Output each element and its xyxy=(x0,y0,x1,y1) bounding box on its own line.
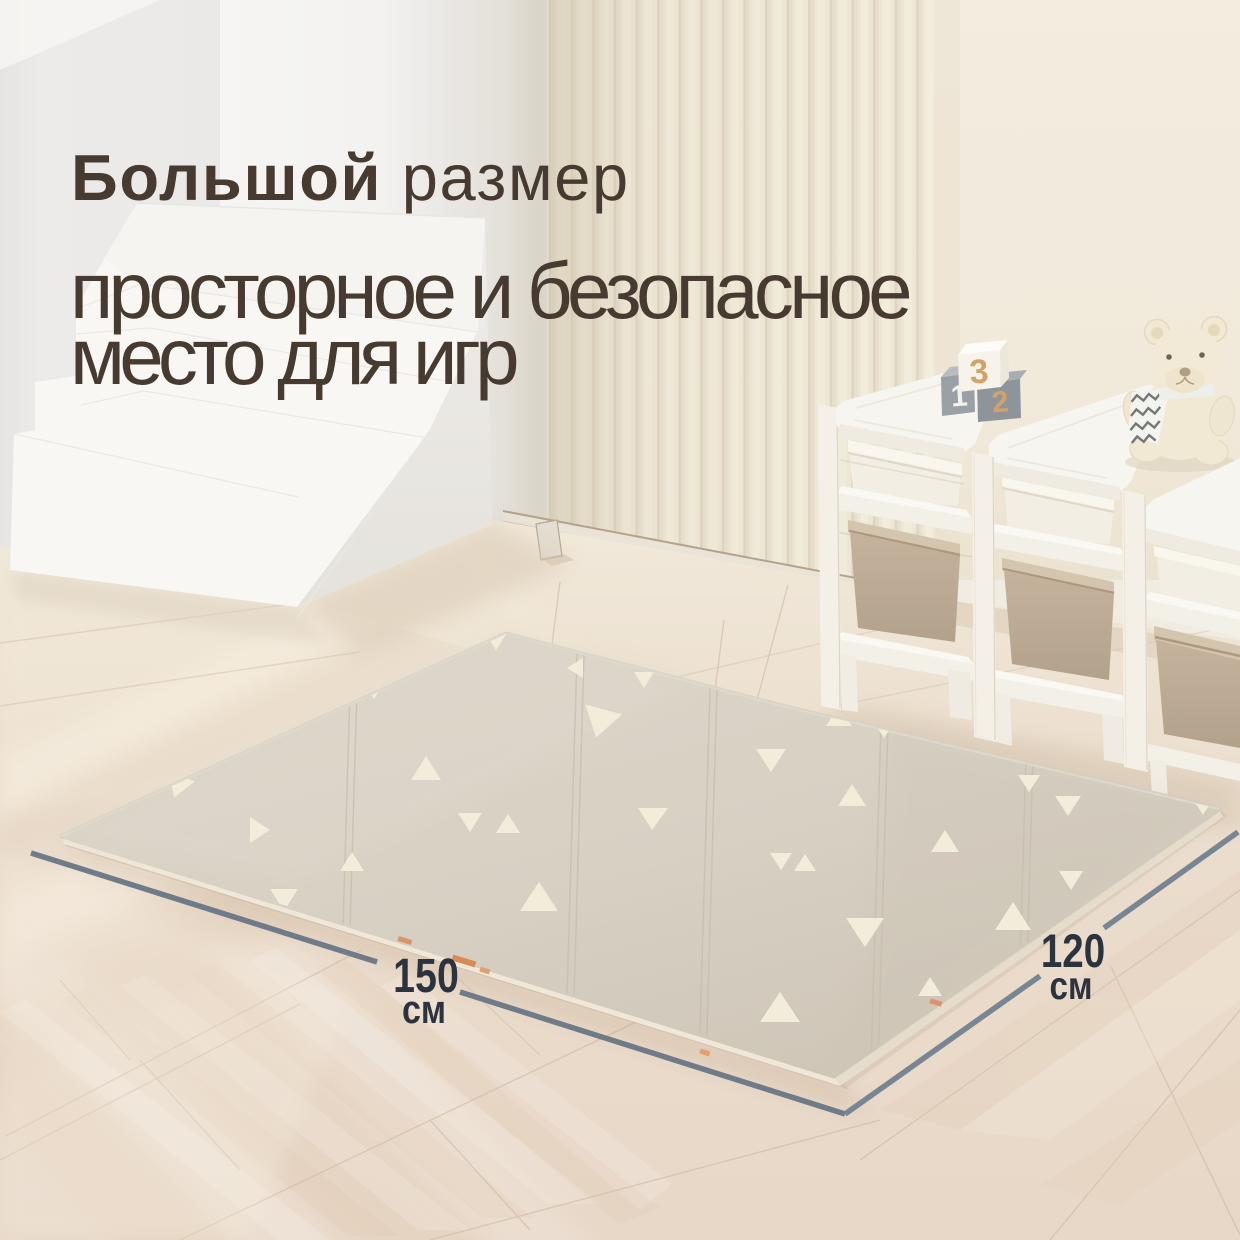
svg-text:1: 1 xyxy=(950,379,969,413)
svg-text:2: 2 xyxy=(991,385,1010,419)
svg-text:3: 3 xyxy=(968,352,990,391)
